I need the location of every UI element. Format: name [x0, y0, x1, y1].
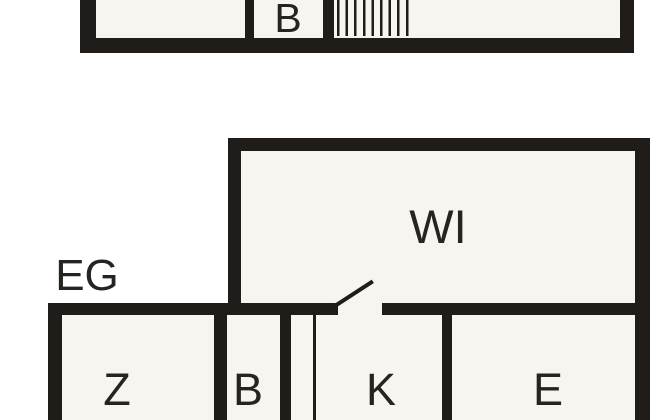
room-label-wi: WI	[241, 198, 635, 254]
wi-left-wall	[228, 138, 241, 315]
divider-wall-right-segment	[382, 303, 650, 315]
upper-floor-right-wall	[620, 0, 634, 53]
door-opening-floor	[338, 303, 382, 315]
divider-wall-left-segment	[48, 303, 338, 315]
wall-k-e	[442, 315, 452, 420]
right-outer-wall	[635, 138, 650, 420]
room-label-e: E	[518, 366, 578, 412]
upper-floor-bottom-wall	[80, 38, 634, 53]
wall-right-of-b	[280, 315, 291, 420]
floor-plan-canvas: B EG WI Z B K E	[0, 0, 650, 420]
upper-floor-wall-right-of-b	[323, 0, 334, 38]
thin-partition-line	[313, 315, 316, 420]
wi-top-wall	[228, 138, 649, 151]
staircase-hatch	[337, 0, 411, 36]
left-outer-wall	[48, 303, 62, 420]
room-label-b: B	[218, 366, 278, 412]
room-label-k: K	[351, 366, 411, 412]
floor-label-eg: EG	[52, 255, 122, 297]
room-label-z: Z	[87, 366, 147, 412]
room-label-upper-b: B	[253, 0, 323, 36]
